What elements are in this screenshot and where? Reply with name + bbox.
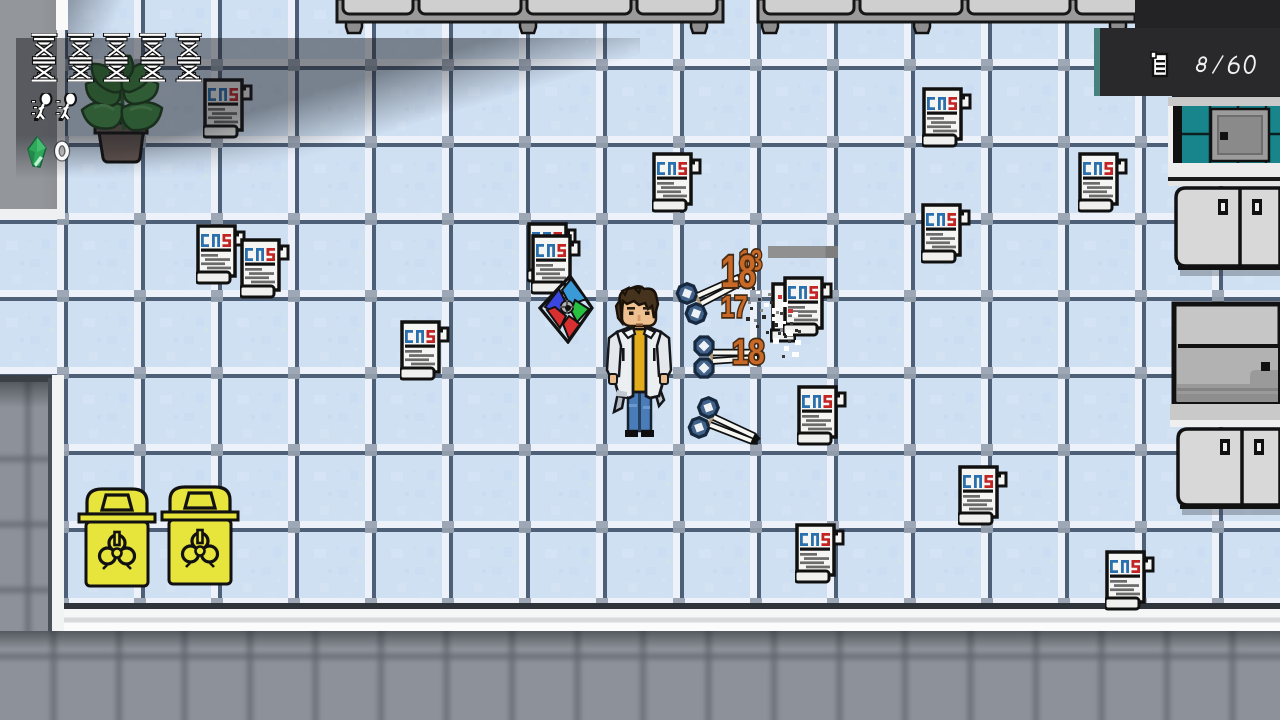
svg-text:18: 18	[732, 333, 765, 372]
svg-text:17: 17	[721, 289, 748, 324]
